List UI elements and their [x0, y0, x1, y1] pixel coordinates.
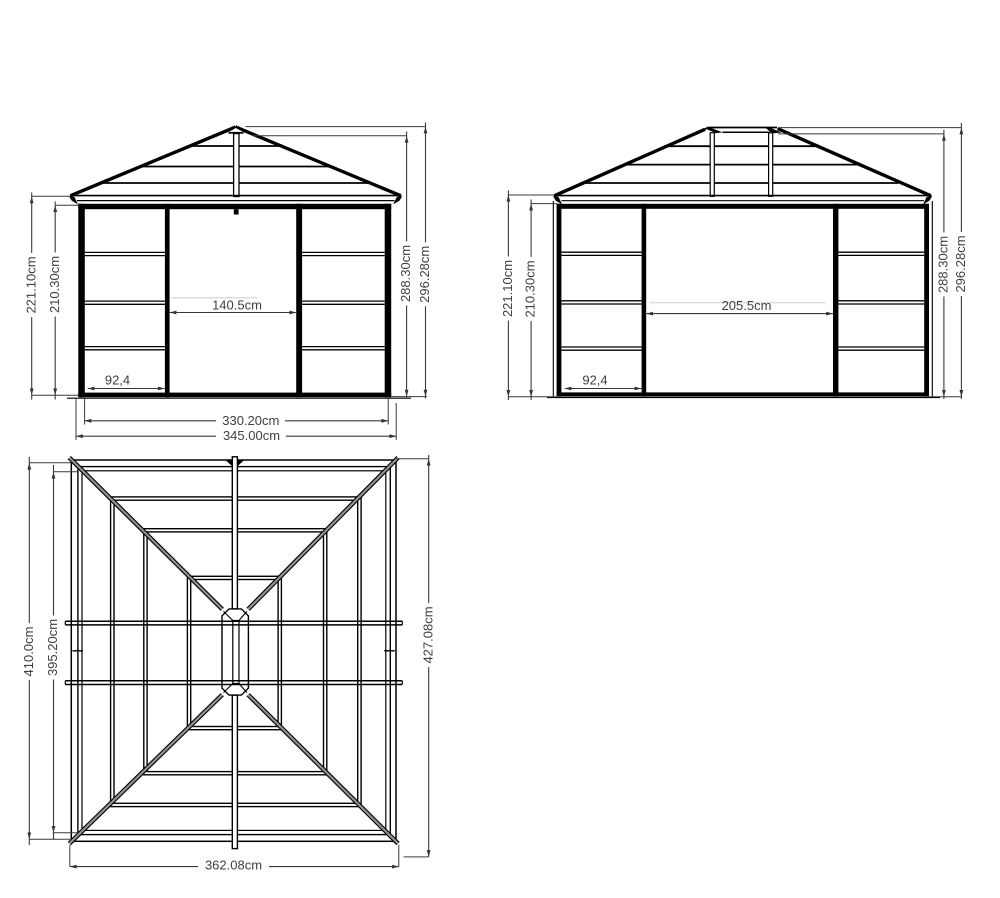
svg-text:296.28cm: 296.28cm [953, 235, 968, 292]
svg-text:288.30cm: 288.30cm [398, 245, 413, 302]
svg-text:221.10cm: 221.10cm [500, 260, 515, 317]
svg-text:427.08cm: 427.08cm [420, 606, 435, 663]
svg-text:221.10cm: 221.10cm [23, 256, 38, 313]
svg-text:330.20cm: 330.20cm [222, 413, 279, 428]
svg-text:210.30cm: 210.30cm [523, 260, 538, 317]
svg-text:92,4: 92,4 [582, 373, 607, 388]
svg-text:92,4: 92,4 [105, 373, 130, 388]
svg-text:362.08cm: 362.08cm [205, 858, 262, 873]
svg-text:296.28cm: 296.28cm [417, 246, 432, 303]
svg-text:410.0cm: 410.0cm [21, 627, 36, 677]
svg-text:210.30cm: 210.30cm [47, 256, 62, 313]
svg-text:140.5cm: 140.5cm [212, 298, 262, 313]
svg-text:205.5cm: 205.5cm [722, 298, 772, 313]
svg-text:345.00cm: 345.00cm [223, 428, 280, 443]
svg-text:288.30cm: 288.30cm [936, 236, 951, 293]
svg-text:395.20cm: 395.20cm [45, 619, 60, 676]
